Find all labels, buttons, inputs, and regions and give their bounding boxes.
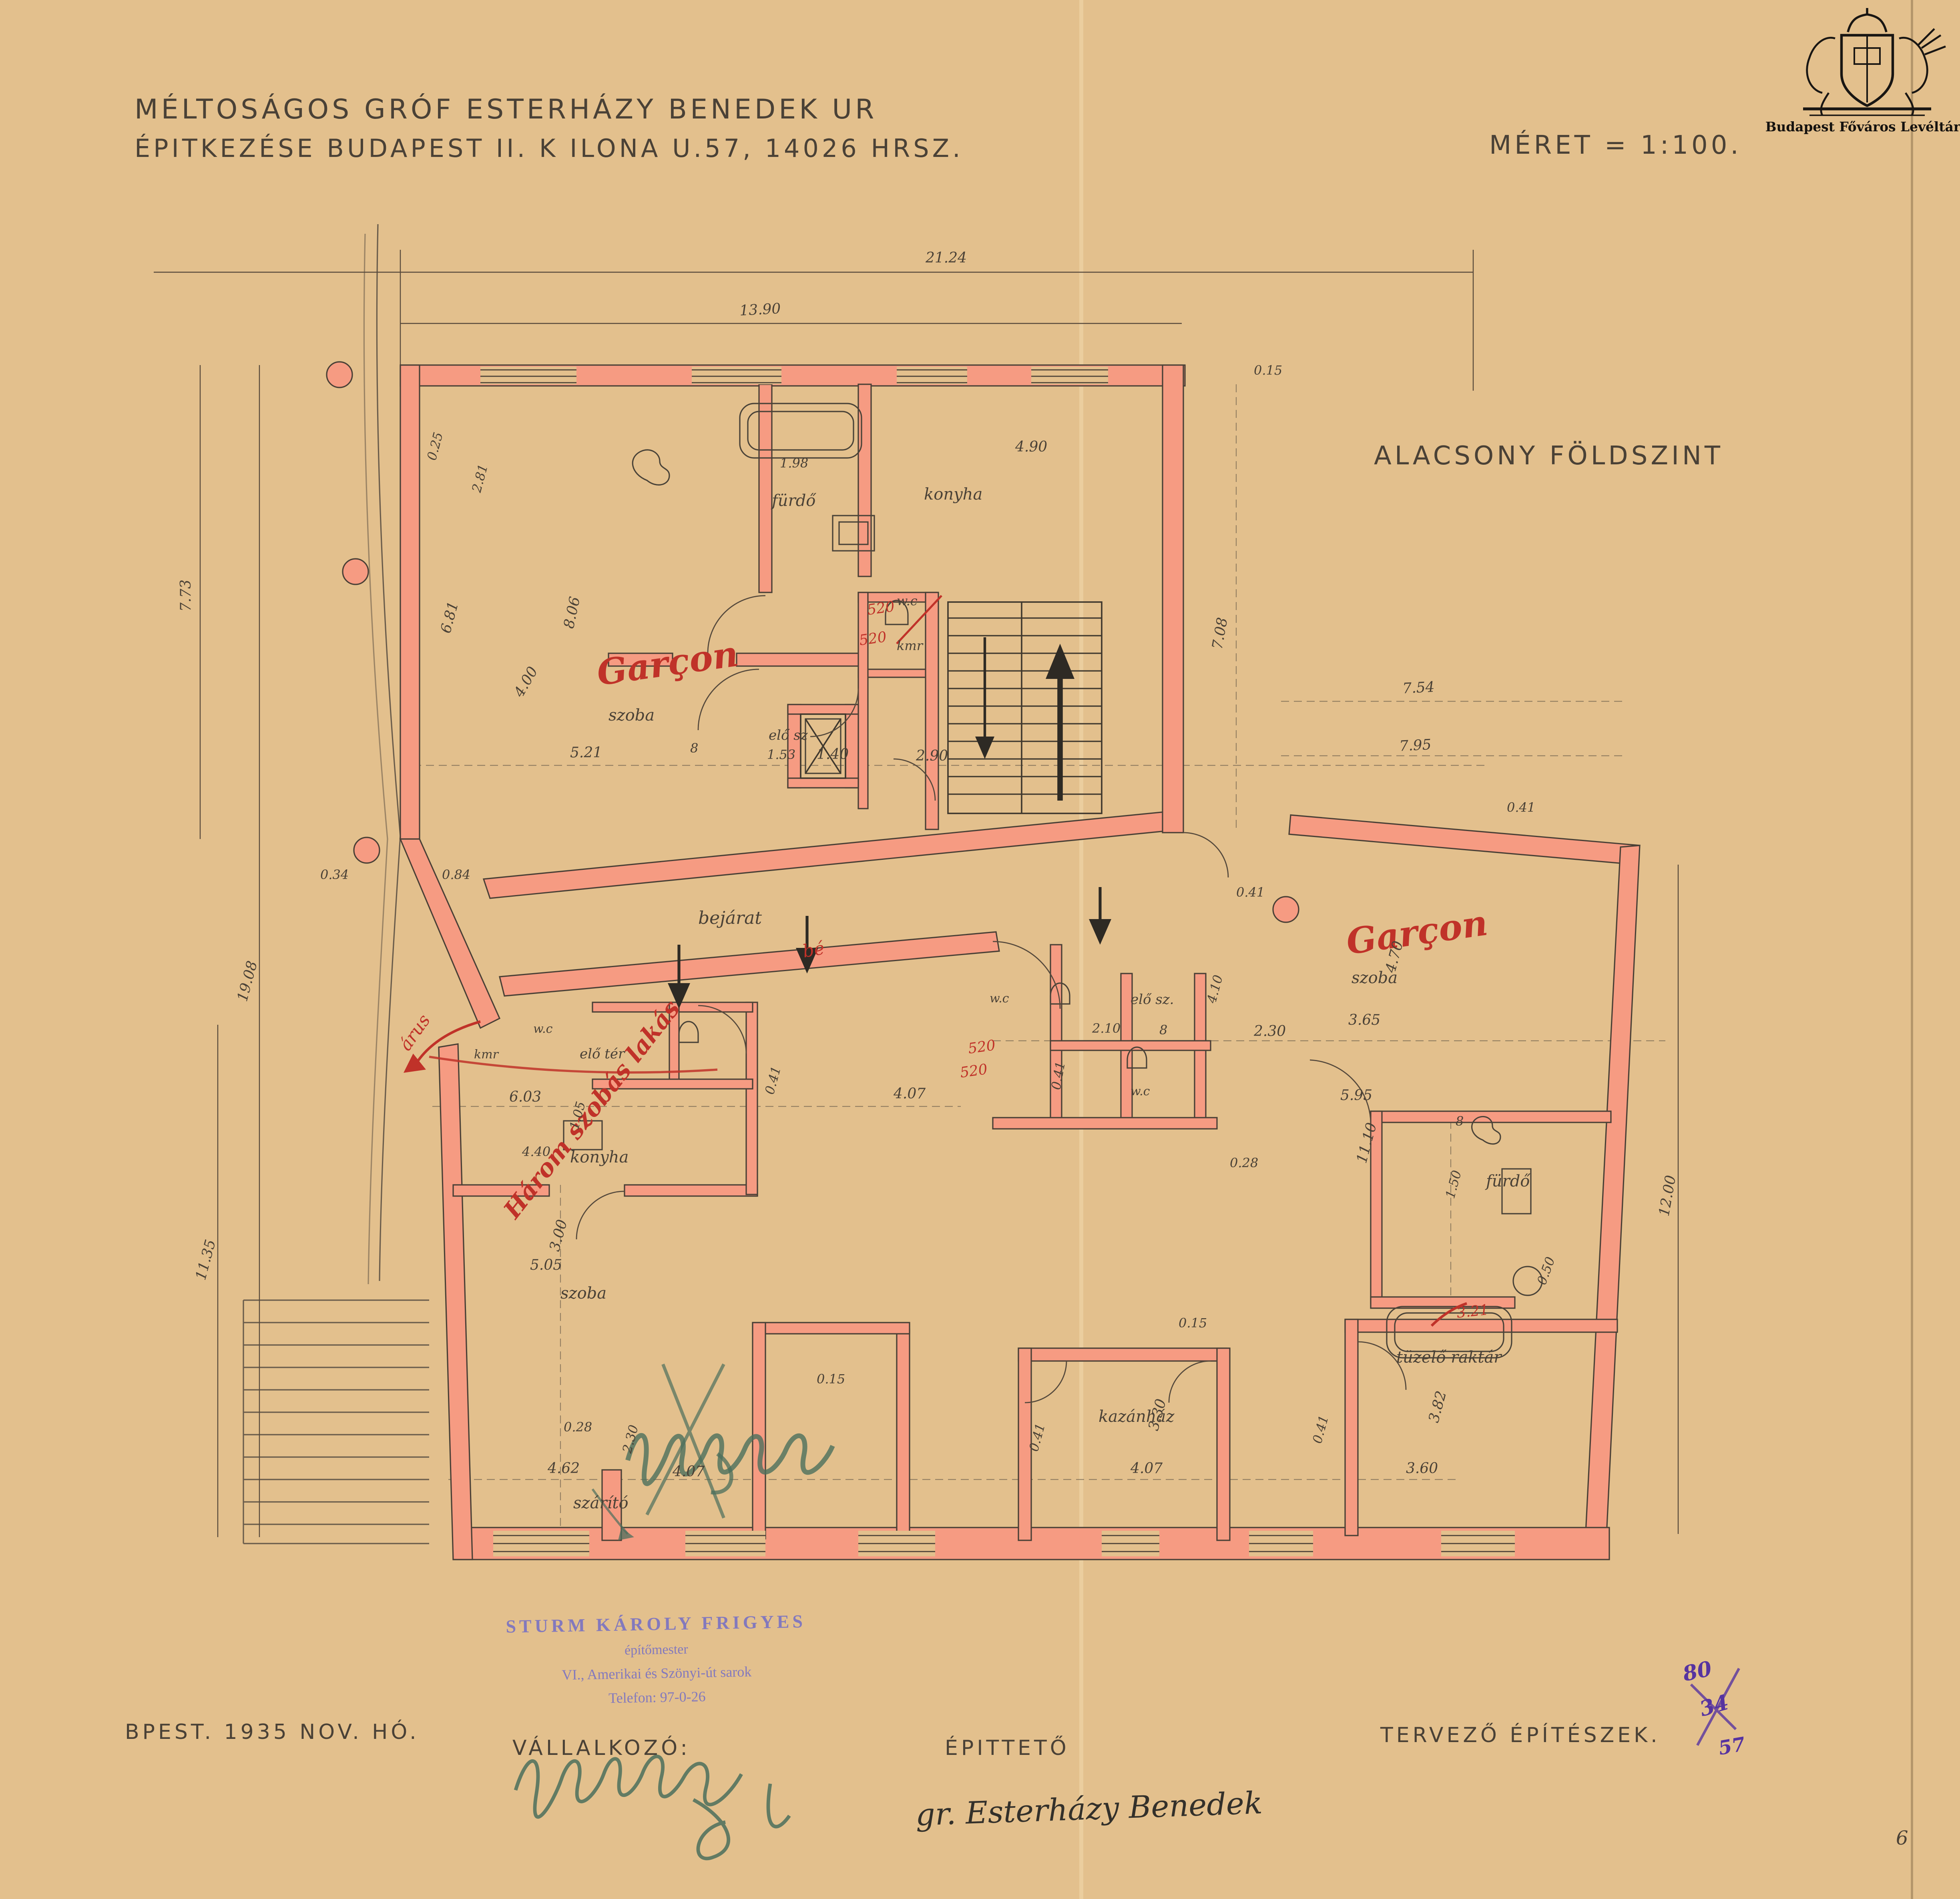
column-dot <box>354 837 380 863</box>
column-dot <box>327 362 352 387</box>
washbasin <box>633 450 669 485</box>
room-label: elő sz <box>769 727 808 743</box>
walls <box>327 362 1640 1560</box>
dimension-label: 21.24 <box>925 250 967 266</box>
room-label: elő sz. <box>1131 992 1174 1008</box>
dimension-label: 4.07 <box>1130 1460 1163 1477</box>
wc-bowl-left <box>679 1022 698 1042</box>
date-label: BPEST. 1935 NOV. HÓ. <box>125 1719 420 1744</box>
title-line-1: MÉLTOSÁGOS GRÓF ESTERHÁZY BENEDEK UR <box>135 93 877 125</box>
dimension-label: 8 <box>690 741 698 756</box>
dimension-label: 1.50 <box>1442 1168 1464 1200</box>
dimension-label: 0.41 <box>1236 885 1265 900</box>
dimension-label: 0.50 <box>1534 1255 1558 1287</box>
archive-numbers: 80 34 57 <box>1680 1656 1747 1760</box>
title-block: MÉLTOSÁGOS GRÓF ESTERHÁZY BENEDEK UR ÉPI… <box>135 93 1742 471</box>
archive-logo: Budapest Főváros Levéltára <box>1765 8 1960 134</box>
archive-note-3: 57 <box>1717 1733 1747 1760</box>
stamp-phone: Telefon: 97-0-26 <box>608 1688 706 1706</box>
room-label: fürdő <box>771 492 816 510</box>
dimension-label: 0.41 <box>1309 1413 1331 1445</box>
dimension-label: 8.06 <box>561 595 584 630</box>
room-label: bejárat <box>698 908 762 928</box>
dimension-label: 3.82 <box>1426 1389 1450 1424</box>
dimension-label: 5.21 <box>570 745 602 761</box>
sheet-artifacts <box>1079 0 1912 1899</box>
wall-rightwing-top <box>1289 815 1640 865</box>
room-label: kmr <box>474 1048 499 1062</box>
room-label: 520 <box>866 598 896 618</box>
room-label: szoba <box>560 1284 606 1303</box>
dimension-label: 2.90 <box>916 748 948 764</box>
contractor-signature <box>516 1756 789 1859</box>
room-label: 3.21 <box>1456 1302 1490 1321</box>
dimension-label: 3.00 <box>546 1218 570 1253</box>
stamp-address: VI., Amerikai és Szönyi-út sarok <box>562 1664 752 1683</box>
staircase <box>948 602 1102 813</box>
dimension-label: 3.30 <box>1145 1397 1169 1432</box>
dimension-label: 1.98 <box>780 456 808 471</box>
wall-corridor-lower <box>500 932 999 996</box>
wall-stair-right <box>1163 365 1183 833</box>
room-label: konyha <box>924 485 982 504</box>
dimension-label: 0.15 <box>1179 1315 1207 1331</box>
wall-left <box>400 365 420 839</box>
stamp-name: STURM KÁROLY FRIGYES <box>506 1611 806 1636</box>
dimension-label: 8 <box>1456 1114 1464 1129</box>
column-dot <box>343 559 368 584</box>
client-label: ÉPITTETŐ <box>945 1736 1070 1760</box>
dimension-label: 6.03 <box>509 1089 541 1105</box>
dimension-label: 0.84 <box>442 867 470 882</box>
page-number: 6 <box>1896 1827 1908 1849</box>
dimension-label: 2.10 <box>1092 1021 1121 1036</box>
room-label: Garçon <box>1343 901 1490 962</box>
dimension-label: 7.08 <box>1209 616 1231 651</box>
stamp-title: építőmester <box>625 1642 689 1658</box>
dimension-label: 0.28 <box>564 1419 592 1435</box>
blueprint-sheet: MÉLTOSÁGOS GRÓF ESTERHÁZY BENEDEK UR ÉPI… <box>0 0 1960 1899</box>
dimension-label: 4.07 <box>893 1086 926 1102</box>
dimension-label: 0.15 <box>817 1371 845 1387</box>
dimension-label: 7.73 <box>178 580 194 612</box>
dimension-label: 12.00 <box>1656 1174 1679 1218</box>
street-steps <box>243 1300 429 1544</box>
dimension-label: 4.00 <box>511 664 541 701</box>
windows <box>480 367 1515 1556</box>
wall-corridor-upper <box>484 810 1182 898</box>
coat-of-arms-icon <box>1803 8 1946 115</box>
room-label: w.c <box>533 1022 553 1036</box>
dimension-label: 5.95 <box>1340 1087 1372 1104</box>
dimension-label: 0.41 <box>762 1064 784 1096</box>
plan-title: ALACSONY FÖLDSZINT <box>1374 441 1723 471</box>
dimension-label: 0.34 <box>320 867 349 882</box>
room-label: w.c <box>897 593 918 608</box>
wall-lowerleft <box>439 1044 472 1560</box>
dimension-label: 3.60 <box>1406 1460 1438 1477</box>
dimension-label: 2.30 <box>619 1423 641 1455</box>
dimension-label: 5.05 <box>530 1257 562 1273</box>
dimension-label: 1.40 <box>817 746 849 763</box>
dimension-label: 0.25 <box>424 430 446 462</box>
archive-logo-text: Budapest Főváros Levéltára <box>1765 119 1960 134</box>
dimension-label: 13.90 <box>739 301 781 319</box>
wall-rightwing-right <box>1585 845 1640 1544</box>
dimension-label: 6.81 <box>438 600 462 635</box>
architects-label: TERVEZŐ ÉPÍTÉSZEK. <box>1380 1723 1661 1747</box>
room-label: szárító <box>573 1494 629 1512</box>
archive-note-1: 80 <box>1680 1656 1714 1686</box>
dimension-label: 1.53 <box>767 747 795 762</box>
dimension-label: 11.35 <box>193 1238 219 1282</box>
dimension-label: 4.90 <box>1015 439 1047 455</box>
room-label: szoba <box>608 706 655 725</box>
title-line-2: ÉPITKEZÉSE BUDAPEST II. K ILONA U.57, 14… <box>135 134 964 163</box>
room-label: 520 <box>858 629 888 649</box>
column-dot <box>1273 897 1299 922</box>
dimension-label: 4.40 <box>522 1144 550 1159</box>
dimension-label: 7.54 <box>1402 679 1435 697</box>
room-label: konyha <box>570 1148 629 1166</box>
dimension-label: 19.08 <box>234 959 261 1003</box>
dimension-label: 0.28 <box>1230 1155 1258 1170</box>
builder-stamp: STURM KÁROLY FRIGYES építőmester VI., Am… <box>506 1611 807 1708</box>
contractor-label: VÁLLALKOZÓ: <box>512 1735 691 1760</box>
dimension-label: 7.95 <box>1399 737 1432 755</box>
scale-label: MÉRET = 1:100. <box>1489 130 1742 160</box>
floor-plan-drawing: MÉLTOSÁGOS GRÓF ESTERHÁZY BENEDEK UR ÉPI… <box>0 0 1960 1899</box>
fold-crease <box>1079 0 1083 1899</box>
dimension-label: 2.30 <box>1253 1023 1286 1040</box>
dimension-label: 0.15 <box>1254 363 1282 378</box>
dimension-label: 4.10 <box>1204 973 1226 1005</box>
room-label: w.c <box>990 992 1009 1006</box>
room-label: w.c <box>1131 1084 1150 1098</box>
dimension-label: 4.62 <box>547 1460 580 1477</box>
dimension-label: 3.65 <box>1348 1012 1380 1028</box>
fixtures <box>564 403 1542 1358</box>
dimension-label: 0.41 <box>1507 800 1535 815</box>
room-label: tüzelő raktár <box>1396 1348 1502 1367</box>
room-label: fürdő <box>1485 1172 1530 1190</box>
room-label: bé <box>801 938 826 962</box>
dimension-label: 2.81 <box>469 462 491 494</box>
room-label: kmr <box>897 638 924 653</box>
dimension-label: 8 <box>1159 1022 1167 1038</box>
room-label: 520 <box>967 1037 997 1057</box>
footer: BPEST. 1935 NOV. HÓ. VÁLLALKOZÓ: ÉPITTET… <box>125 1719 1908 1859</box>
client-signature: gr. Esterházy Benedek <box>915 1785 1263 1833</box>
dimension-label: 4.07 <box>672 1463 705 1480</box>
room-label: 520 <box>959 1061 989 1081</box>
